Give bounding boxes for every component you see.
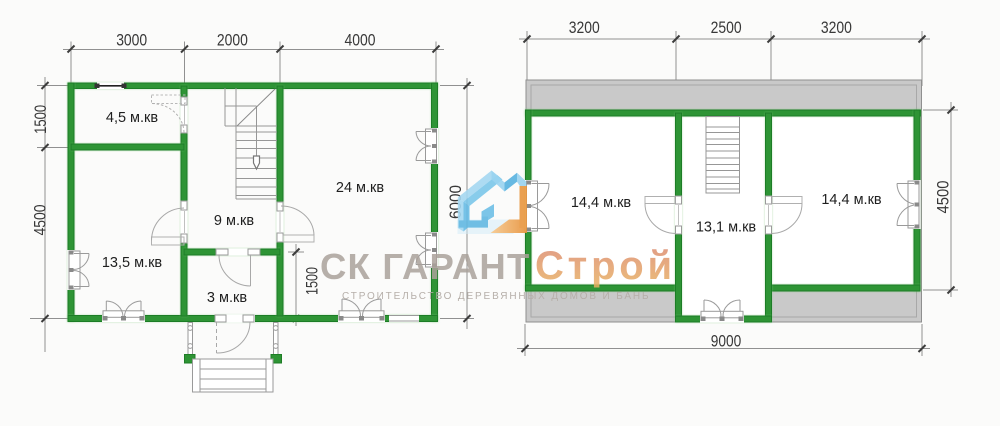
svg-text:14,4 м.кв: 14,4 м.кв bbox=[571, 195, 632, 211]
svg-text:1500: 1500 bbox=[31, 105, 50, 134]
svg-text:4000: 4000 bbox=[345, 31, 376, 50]
svg-text:4,5 м.кв: 4,5 м.кв bbox=[106, 110, 159, 126]
svg-text:Строй: Строй bbox=[535, 244, 676, 288]
svg-text:9 м.кв: 9 м.кв bbox=[214, 213, 254, 229]
svg-text:4500: 4500 bbox=[31, 205, 50, 236]
svg-text:СТРОИТЕЛЬСТВО ДЕРЕВЯННЫХ ДОМОВ: СТРОИТЕЛЬСТВО ДЕРЕВЯННЫХ ДОМОВ И БАНЬ bbox=[342, 291, 650, 302]
svg-text:13,1 м.кв: 13,1 м.кв bbox=[696, 220, 757, 236]
svg-text:9000: 9000 bbox=[711, 332, 742, 351]
svg-text:3000: 3000 bbox=[116, 31, 147, 50]
svg-text:2500: 2500 bbox=[711, 18, 742, 37]
svg-text:СК ГАРАНТ: СК ГАРАНТ bbox=[320, 246, 530, 287]
svg-text:3200: 3200 bbox=[569, 18, 600, 37]
svg-text:3 м.кв: 3 м.кв bbox=[207, 290, 247, 306]
svg-text:14,4 м.кв: 14,4 м.кв bbox=[821, 192, 882, 208]
svg-text:2000: 2000 bbox=[217, 31, 248, 50]
svg-text:13,5 м.кв: 13,5 м.кв bbox=[102, 255, 163, 271]
svg-text:3200: 3200 bbox=[821, 18, 852, 37]
svg-text:4500: 4500 bbox=[934, 181, 953, 214]
svg-text:24 м.кв: 24 м.кв bbox=[336, 180, 384, 196]
svg-text:1500: 1500 bbox=[303, 267, 322, 295]
